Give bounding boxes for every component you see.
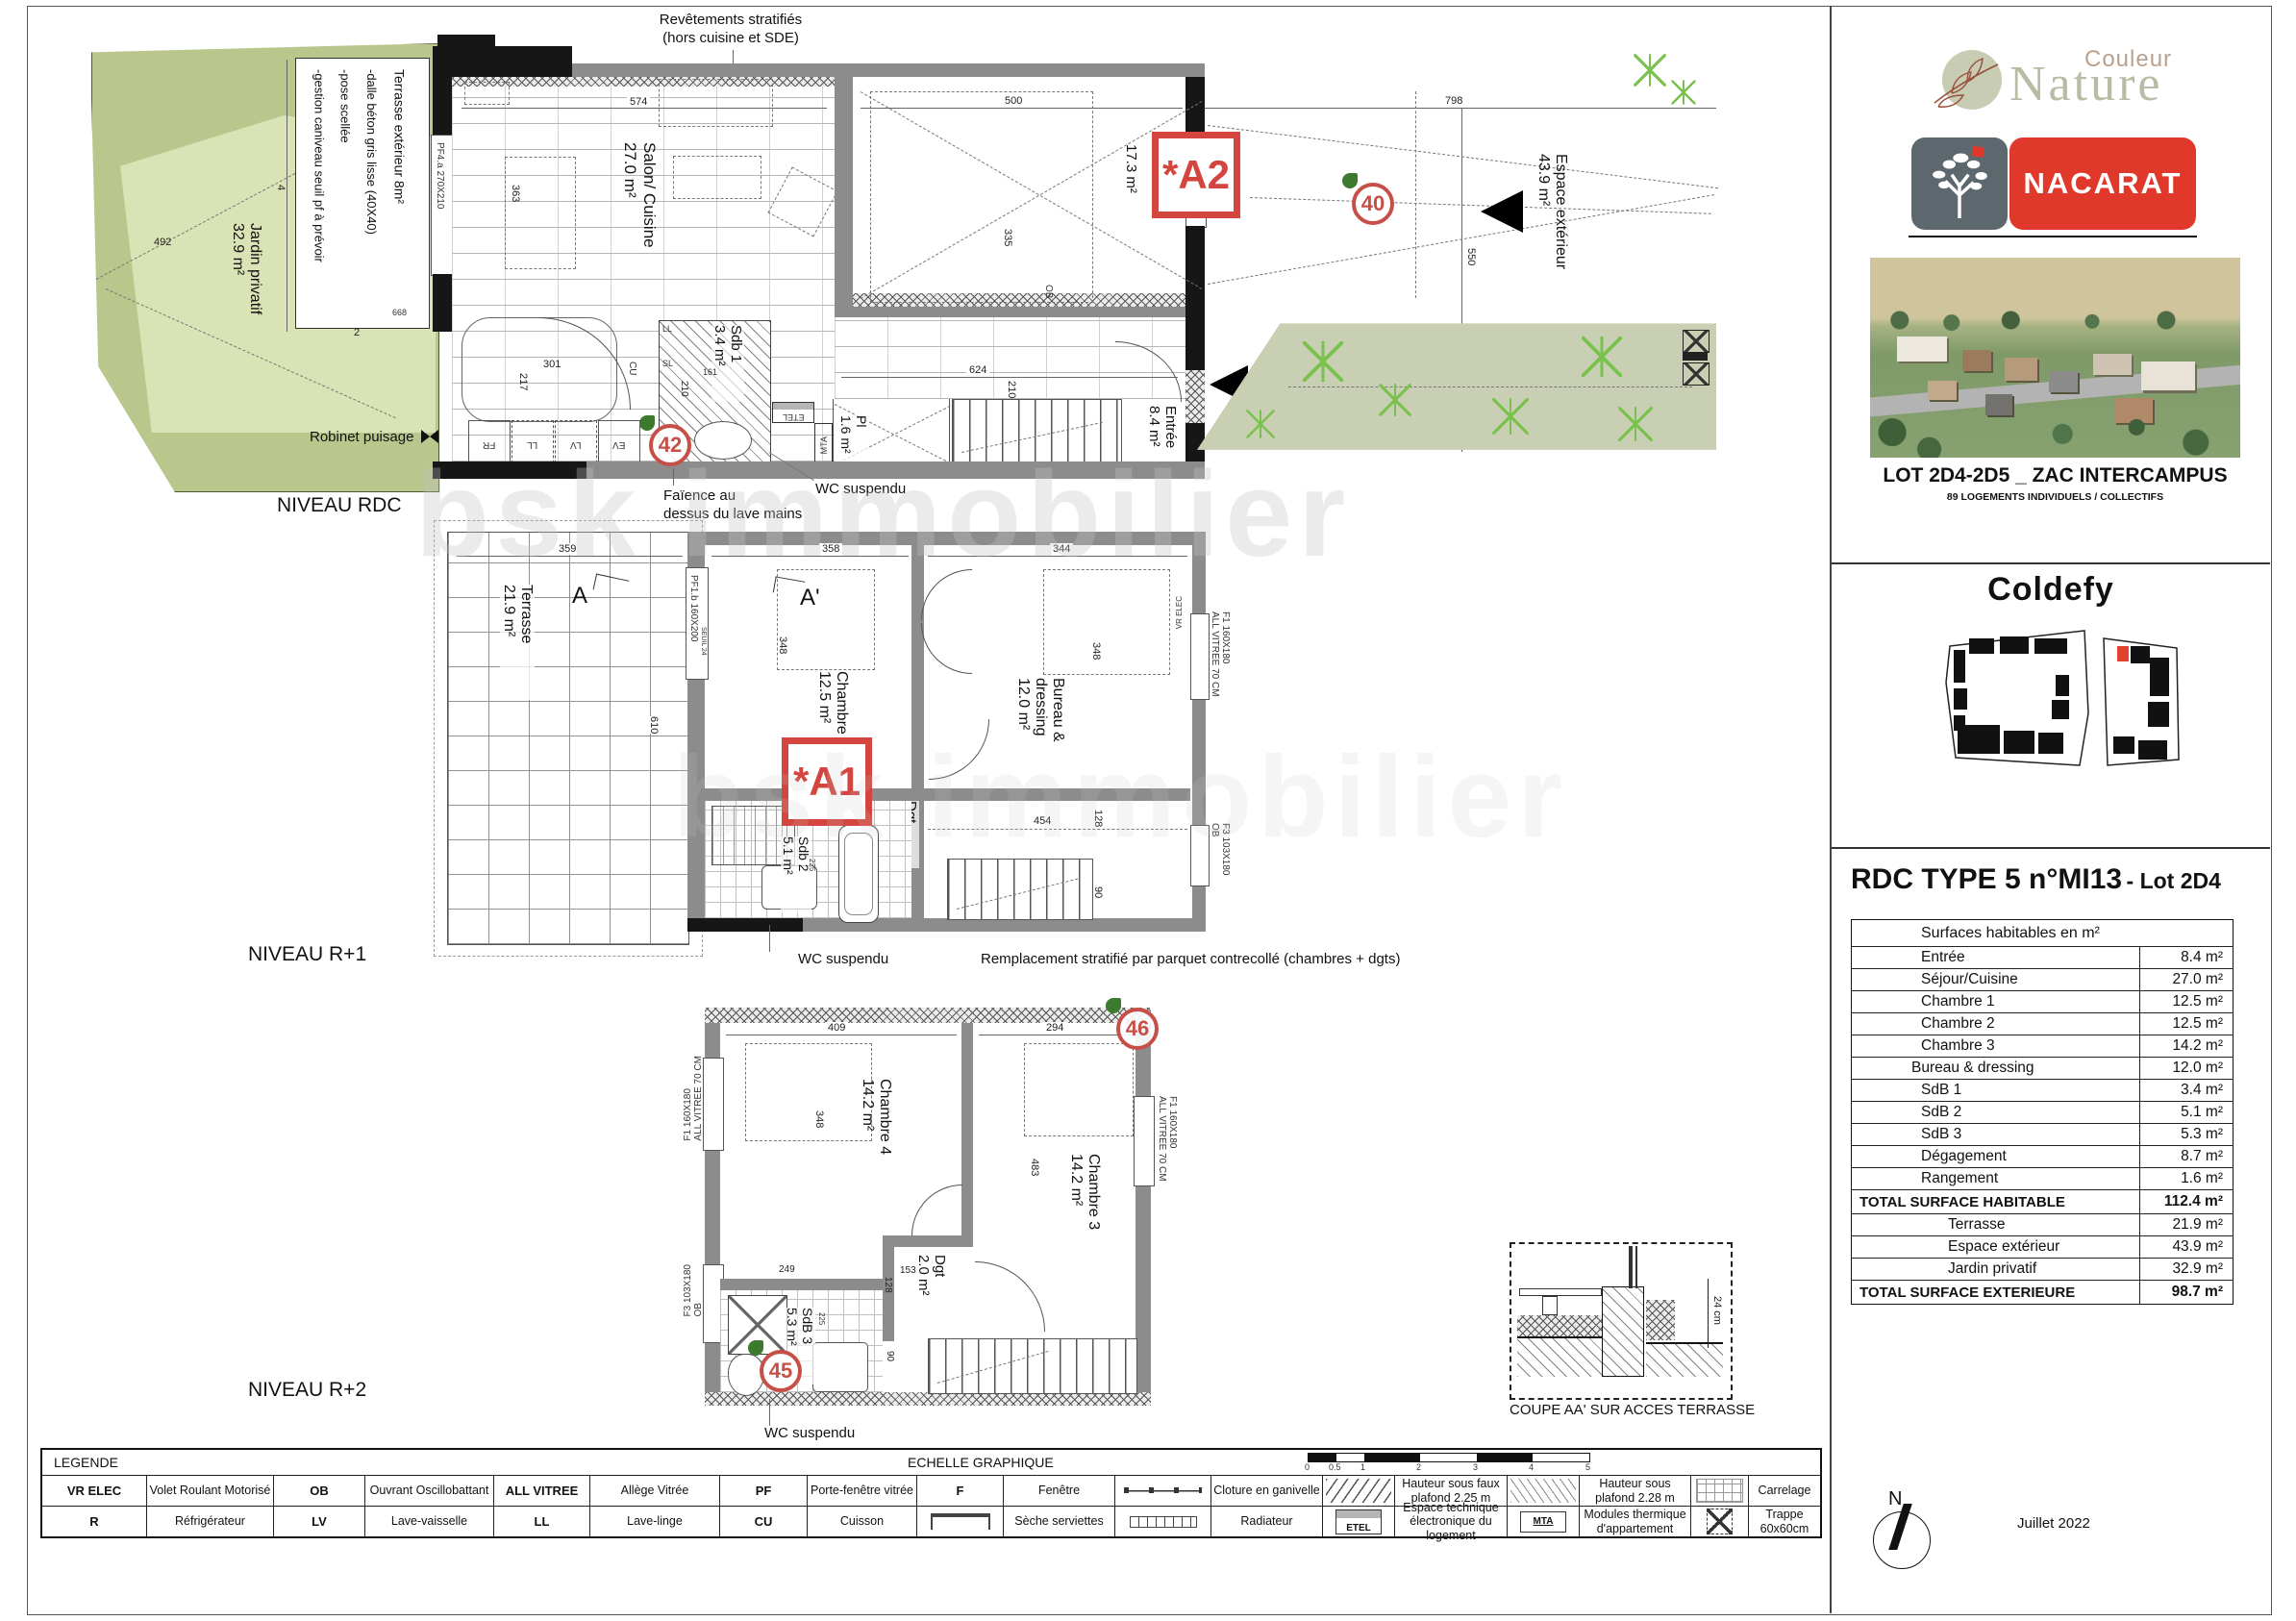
aerial-building-5 [2093, 354, 2132, 375]
legend-hatch1-cell [1322, 1475, 1394, 1506]
r2-ch4-label: Chambre 4 14.2 m² [859, 1079, 893, 1189]
r2-ch3-name: Chambre 3 [1085, 1154, 1102, 1264]
r2-dgt-label: Dgt 2.0 m² [915, 1255, 948, 1327]
salon-name: Salon/ Cuisine [639, 142, 659, 253]
r1-wall-mid-h [705, 788, 1190, 801]
r1-terrasse-name: Terrasse [517, 585, 535, 700]
r1-wall-top [702, 532, 1205, 545]
dim-492: 492 [154, 237, 171, 248]
row-value: 5.1 m² [2139, 1102, 2233, 1123]
dim-249: 249 [779, 1264, 795, 1275]
legend-seche-label: Sèche serviettes [1003, 1506, 1114, 1536]
salon-label: Salon/ Cuisine 27.0 m² [620, 142, 659, 253]
row-value: 43.9 m² [2139, 1236, 2233, 1258]
note-remplacement: Remplacement stratifié par parquet contr… [981, 951, 1400, 969]
garden-note-l1: Terrasse extérieur 8m² [385, 69, 412, 319]
row-label: Séjour/Cuisine [1852, 971, 2139, 988]
r1-bureau-label: Bureau & dressing 12.0 m² [1014, 678, 1066, 803]
row-label: SdB 3 [1852, 1126, 2139, 1143]
appliance-ll-label: LL [527, 439, 537, 450]
r2-ch3-bed [1024, 1043, 1134, 1136]
table-row: Chambre 212.5 m² [1852, 1012, 2233, 1035]
r1-bureau-l3: 12.0 m² [1014, 678, 1032, 803]
dim-210b: 210 [1006, 381, 1017, 398]
badge-a2: *A2 [1152, 132, 1240, 218]
garage-wall-bottom [853, 307, 1185, 317]
hatch1-symbol [1326, 1479, 1390, 1503]
dim-225-r2: 225 [817, 1312, 826, 1325]
salon-furn-1 [464, 82, 510, 105]
dim-610: 610 [648, 716, 660, 734]
row-label: Bureau & dressing [1852, 1060, 2139, 1077]
salon-area: 27.0 m² [620, 142, 639, 253]
dimline-294 [979, 1035, 1133, 1035]
panel-divider-1 [1832, 562, 2270, 564]
table-total-exterieure: TOTAL SURFACE EXTERIEURE98.7 m² [1852, 1280, 2233, 1304]
legend-r-label: Réfrigérateur [146, 1506, 273, 1536]
r1-sdb2-bathtub-inner [844, 833, 873, 915]
dim-210a: 210 [679, 381, 689, 397]
dim-454: 454 [1031, 815, 1054, 827]
coupe-dim-line [1708, 1279, 1709, 1348]
lot-subtitle: 89 LOGEMENTS INDIVIDUELS / COLLECTIFS [1870, 491, 2240, 503]
plant-band-1 [1303, 341, 1343, 382]
hatch2-symbol [1510, 1479, 1575, 1503]
legend-trap-cell [1690, 1506, 1748, 1536]
scale-seg-4 [1420, 1454, 1477, 1461]
r2-ch3-label: Chambre 3 14.2 m² [1067, 1154, 1102, 1264]
dim-153: 153 [900, 1265, 916, 1276]
legend-etel-label: Espace technique électronique du logemen… [1394, 1506, 1507, 1536]
salon-furn-2 [659, 79, 773, 127]
mta-symbol: MTA [1520, 1511, 1566, 1533]
site-key-map [1942, 625, 2183, 769]
row-label: Entrée [1852, 949, 2139, 966]
dimline-409 [726, 1035, 957, 1035]
coupe-deck [1519, 1288, 1602, 1296]
r1-bureau-l1: Bureau & [1049, 678, 1066, 803]
note-wc-r2: WC suspendu [764, 1425, 855, 1443]
dimline-garden-v [287, 60, 287, 332]
coupe-slab-cross [1517, 1315, 1602, 1336]
row-value: 27.0 m² [2139, 969, 2233, 990]
r2-wall-mid-v [961, 1023, 973, 1240]
etel-symbol: ETEL [1335, 1509, 1382, 1534]
legend-vr-elec: VR ELEC [42, 1475, 146, 1506]
scale-tick-1: 1 [1360, 1462, 1365, 1472]
row-label: Espace extérieur [1852, 1238, 2139, 1256]
legend-allvitree-label: Allège Vitrée [589, 1475, 719, 1506]
r2-ch3-area: 14.2 m² [1067, 1154, 1085, 1264]
legend-ll: LL [493, 1506, 589, 1536]
r1-bureau-wardrobe [1043, 569, 1170, 675]
trappe-box-2 [1683, 362, 1710, 386]
lot-title: LOT 2D4-2D5 _ ZAC INTERCAMPUS [1870, 464, 2240, 487]
r1-sdb2-name: Sdb 2 [796, 836, 811, 913]
r2-ch4-area: 14.2 m² [859, 1079, 876, 1189]
rdc-window-pf4-label: PF4.a 270X210 [435, 142, 445, 210]
r1-f1-allvitree: ALL VITREE 70 CM [1210, 611, 1220, 697]
dim-359: 359 [556, 543, 579, 555]
panel-divider [1830, 6, 1832, 1613]
jardin-label: Jardin privatif 32.9 m² [229, 223, 263, 348]
radiator-symbol [1130, 1516, 1197, 1528]
r2-wall-sdb3-h [720, 1279, 886, 1290]
r1-f1-label: F1 160X180 ALL VITREE 70 CM [1210, 611, 1231, 697]
total-ext-value: 98.7 m² [2139, 1281, 2233, 1304]
entree-name: Entrée [1162, 406, 1179, 465]
jardin-name: Jardin privatif [246, 223, 263, 348]
marker-40: 40 [1352, 183, 1394, 225]
r2-wall-top [705, 1008, 1151, 1023]
rdc-wall-top [572, 63, 1205, 77]
legend-allvitree: ALL VITREE [493, 1475, 589, 1506]
appliance-ev-label: EV [612, 439, 625, 450]
r1-wall-mid-v [911, 545, 924, 798]
r1-f1-ref: F1 160X180 [1220, 611, 1231, 697]
table-row: Dégagement8.7 m² [1852, 1145, 2233, 1167]
aerial-building-2 [1962, 350, 1991, 371]
rdc-wall-right-a [1185, 317, 1205, 370]
plan-date: Juillet 2022 [2017, 1515, 2090, 1532]
coupe-right-cross [1646, 1300, 1675, 1340]
r1-f3-ob: OB [1210, 823, 1220, 876]
plant-band-3 [1246, 410, 1274, 437]
plant-topright-1 [1634, 54, 1666, 87]
rdc-wall-right-h [1185, 370, 1205, 423]
echelle-title: ECHELLE GRAPHIQUE [908, 1455, 1054, 1470]
dim-4: 4 [275, 185, 287, 190]
legend-mta-label: Modules thermique d'appartement [1579, 1506, 1690, 1536]
legend-rad-cell [1114, 1506, 1210, 1536]
r1-pf1-label: PF1.b 160X200 [688, 575, 699, 642]
dim-483: 483 [1029, 1159, 1040, 1176]
coupe-window-frame2 [1635, 1246, 1637, 1288]
rdc-wall-bottom-b [433, 461, 586, 479]
legend-f: F [916, 1475, 1003, 1506]
scale-seg-1 [1309, 1454, 1336, 1461]
sdb1-basin [694, 421, 752, 460]
marker-40-leaf [1342, 173, 1358, 188]
r2-wall-right [1136, 1023, 1151, 1392]
r2-sdb3-name: SdB 3 [800, 1308, 815, 1384]
dim-90-r2: 90 [885, 1351, 895, 1361]
row-value: 32.9 m² [2139, 1259, 2233, 1280]
plan-title-suffix: - Lot 2D4 [2127, 868, 2221, 893]
row-value: 8.4 m² [2139, 947, 2233, 968]
r1-terrasse-label: Terrasse 21.9 m² [500, 585, 535, 700]
entree-area: 8.4 m² [1146, 406, 1162, 465]
leader-faience [673, 468, 674, 486]
brand-nature: Nature [2009, 56, 2162, 112]
table-total-habitable: TOTAL SURFACE HABITABLE112.4 m² [1852, 1189, 2233, 1213]
row-label: SdB 2 [1852, 1104, 2139, 1121]
robinet-icon [420, 429, 439, 444]
nacarat-logo-text: NACARAT [2009, 137, 2196, 230]
panel-divider-2 [1832, 847, 2270, 849]
legend-lv: LV [273, 1506, 364, 1536]
r2-sdb3-sink [812, 1342, 868, 1392]
note-revetements: Revêtements stratifiés (hors cuisine et … [615, 12, 846, 48]
r1-vr-elec: VR ELEC [1175, 596, 1184, 629]
row-label: Terrasse [1852, 1216, 2139, 1234]
dim-358: 358 [819, 543, 842, 555]
total-hab-label: TOTAL SURFACE HABITABLE [1852, 1194, 2139, 1210]
garden-note-l2: -dalle béton gris lisse (40X40) [359, 69, 385, 319]
etel-label: ETEL [783, 412, 805, 422]
coupe-step [1602, 1286, 1644, 1377]
dim-500: 500 [1002, 95, 1025, 107]
dim-348b: 348 [1090, 642, 1102, 660]
pl-area: 1.6 m² [838, 415, 854, 468]
legend-hatch2-cell [1507, 1475, 1579, 1506]
scale-seg-2 [1336, 1454, 1364, 1461]
title-niveau-r2: NIVEAU R+2 [248, 1379, 366, 1402]
legend-grid: VR ELEC Volet Roulant Motorisé OB Ouvran… [42, 1475, 1820, 1536]
architect-name: Coldefy [1832, 571, 2270, 609]
r2-dgt-area: 2.0 m² [915, 1255, 932, 1327]
legend-pf-label: Porte-fenêtre vitrée [807, 1475, 916, 1506]
espace-triangle [1481, 190, 1523, 233]
legend-pf: PF [719, 1475, 807, 1506]
r2-wall-bottom [705, 1392, 1151, 1406]
title-niveau-rdc: NIVEAU RDC [277, 494, 402, 517]
leader-wc-r2 [769, 1399, 770, 1426]
table-row: Entrée8.4 m² [1852, 946, 2233, 968]
r2-f3-ref: F3 103X180 [683, 1264, 693, 1317]
sdb1-ll: LL [662, 324, 672, 334]
r1-stairs [947, 859, 1093, 920]
dim-344: 344 [1050, 543, 1073, 555]
table-row: Bureau & dressing12.0 m² [1852, 1057, 2233, 1079]
garage-dashed-rect [870, 91, 1093, 303]
legend-ob: OB [273, 1475, 364, 1506]
total-hab-value: 112.4 m² [2139, 1190, 2233, 1213]
legend-cu-label: Cuisson [807, 1506, 916, 1536]
marker-42-leaf [639, 415, 655, 431]
note-revetements-line1: Revêtements stratifiés [660, 12, 802, 28]
r1-wall-bottom-b [687, 918, 803, 932]
table-row: Rangement1.6 m² [1852, 1167, 2233, 1189]
marker-45: 45 [760, 1350, 802, 1392]
dimline-454 [928, 829, 1187, 830]
legend-f-label: Fenêtre [1003, 1475, 1114, 1506]
scale-seg-6 [1533, 1454, 1589, 1461]
couleur-nature-leaves-icon [1923, 43, 2014, 120]
sdb1-name: Sdb 1 [728, 325, 744, 402]
dim-798: 798 [1442, 95, 1465, 107]
dimline-500 [861, 108, 1183, 109]
surfaces-table: Surfaces habitables en m² Entrée8.4 m² S… [1851, 919, 2234, 1305]
rdc-wall-hatch-top [452, 77, 836, 87]
row-value: 1.6 m² [2139, 1168, 2233, 1189]
key-map-highlight [2117, 646, 2129, 661]
garage-wall-left [835, 77, 853, 317]
legend-fence-label: Cloture en ganivelle [1210, 1475, 1322, 1506]
dim-161: 161 [703, 367, 717, 377]
r1-f3-label: F3 103X180 OB [1210, 823, 1231, 876]
coupe-right-slab [1646, 1342, 1723, 1377]
r2-f1a-allvitree: ALL VITREE 70 CM [693, 1056, 704, 1141]
marker-42: 42 [649, 424, 691, 466]
row-label: Chambre 1 [1852, 993, 2139, 1010]
table-row: Chambre 112.5 m² [1852, 990, 2233, 1012]
r1-f3-ref: F3 103X180 [1220, 823, 1231, 876]
plan-title: RDC TYPE 5 n°MI13 - Lot 2D4 [1851, 863, 2235, 896]
note-wc-rdc: WC suspendu [815, 481, 906, 499]
row-label: Jardin privatif [1852, 1260, 2139, 1278]
plant-band-5 [1582, 337, 1622, 377]
row-value: 12.5 m² [2139, 1013, 2233, 1035]
rdc-stairs [952, 399, 1122, 468]
row-label: Chambre 2 [1852, 1015, 2139, 1033]
r1-terrasse-area: 21.9 m² [500, 585, 517, 700]
garage-ob: OB [1043, 285, 1054, 298]
r1-window-f3 [1190, 825, 1210, 886]
dim-90: 90 [1092, 886, 1104, 898]
rdc-wall-topleft2 [437, 35, 495, 46]
r2-window-f1b [1134, 1096, 1155, 1186]
scale-tick-0: 0 [1305, 1462, 1310, 1472]
scale-bar [1308, 1453, 1590, 1462]
total-ext-label: TOTAL SURFACE EXTERIEURE [1852, 1284, 2139, 1301]
legend-mta-cell: MTA [1507, 1506, 1579, 1536]
trappe-bar [1683, 353, 1708, 361]
row-value: 8.7 m² [2139, 1146, 2233, 1167]
table-row: SdB 13.4 m² [1852, 1079, 2233, 1101]
legend-hatch2-label: Hauteur sous plafond 2.28 m [1579, 1475, 1690, 1506]
dimline-798 [1205, 108, 1716, 109]
r2-wall-dgt-h [883, 1235, 973, 1247]
aerial-treeline [1870, 308, 2240, 333]
dim-128-r2: 128 [883, 1277, 893, 1293]
r1-sdb2-area: 5.1 m² [781, 836, 796, 913]
dim-348a: 348 [777, 636, 788, 654]
trappe-box-1 [1683, 330, 1710, 353]
legend-r: R [42, 1506, 146, 1536]
dim-217: 217 [517, 373, 529, 390]
sdb1-sl: SL [662, 359, 673, 368]
row-label: Rangement [1852, 1170, 2139, 1187]
legend: LEGENDE ECHELLE GRAPHIQUE 0 0.5 1 2 3 4 … [40, 1448, 1822, 1538]
r2-sdb3-wc [728, 1354, 764, 1396]
marker-46-leaf [1106, 998, 1121, 1013]
coupe-plot [1542, 1296, 1558, 1315]
r2-f1b-label: F1 160X180 ALL VITREE 70 CM [1157, 1096, 1178, 1182]
r2-ch4-bed [745, 1043, 872, 1141]
trappe-symbol [1707, 1509, 1733, 1534]
r2-f1b-ref: F1 160X180 [1167, 1096, 1178, 1182]
salon-furn-3 [505, 157, 576, 269]
carrelage-symbol [1696, 1479, 1742, 1503]
scale-seg-3 [1364, 1454, 1420, 1461]
dim-225-r1: 225 [808, 859, 816, 871]
r1-chambre-wardrobe [777, 569, 875, 670]
appliance-lv-label: LV [570, 439, 582, 450]
garden-note-l3: -pose scellée [332, 69, 358, 319]
r1-terrasse [447, 532, 689, 945]
legend-grid-cell [1690, 1475, 1748, 1506]
plant-band-4 [1492, 398, 1529, 435]
mta-label: MTA [819, 436, 829, 454]
coupe-window-frame [1629, 1246, 1633, 1288]
dim-550: 550 [1465, 248, 1477, 265]
badge-a1: *A1 [782, 737, 872, 826]
leader-wc-r1 [769, 925, 770, 952]
scale-tick-5: 5 [1585, 1462, 1590, 1472]
scale-tick-2: 2 [1416, 1462, 1421, 1472]
r2-window-f1a [703, 1058, 724, 1151]
legend-trap-label: Trappe 60x60cm [1748, 1506, 1820, 1536]
dimline-358 [711, 556, 909, 557]
row-value: 12.0 m² [2139, 1058, 2233, 1079]
marker-45-leaf [748, 1340, 763, 1356]
dim-294: 294 [1043, 1022, 1066, 1034]
row-value: 21.9 m² [2139, 1214, 2233, 1235]
legend-ob-label: Ouvrant Oscillobattant [364, 1475, 493, 1506]
plant-band-2 [1379, 384, 1411, 416]
r2-dgt-name: Dgt [932, 1255, 948, 1327]
plan-title-main: RDC TYPE 5 n°MI13 [1851, 863, 2122, 895]
jardin-area: 32.9 m² [229, 223, 246, 348]
table-row-ext: Jardin privatif32.9 m² [1852, 1258, 2233, 1280]
espace-dash-v [1415, 91, 1416, 298]
r2-f1b-allvitree: ALL VITREE 70 CM [1157, 1096, 1167, 1182]
scale-tick-3: 3 [1473, 1462, 1478, 1472]
espace-area: 43.9 m² [1535, 154, 1552, 279]
nacarat-underline [1909, 236, 2197, 237]
robinet-label: Robinet puisage [310, 429, 413, 447]
scale-tick-05: 0.5 [1329, 1462, 1341, 1472]
dim-335: 335 [1002, 229, 1013, 246]
plan-sheet: bsk immobilier bsk immobilier Revêtement… [0, 0, 2296, 1621]
dim-574: 574 [627, 96, 650, 108]
legend-lv-label: Lave-vaisselle [364, 1506, 493, 1536]
r2-ch4-name: Chambre 4 [876, 1079, 893, 1189]
row-value: 5.3 m² [2139, 1124, 2233, 1145]
r1-window-f1 [1190, 613, 1210, 700]
sdb1-area: 3.4 m² [711, 325, 728, 402]
etel-box: ETEL [772, 402, 814, 423]
legend-cu: CU [719, 1506, 807, 1536]
legend-grid-label: Carrelage [1748, 1475, 1820, 1506]
pl-name: Pl [854, 415, 869, 468]
nacarat-tree-icon [1921, 143, 1998, 224]
r1-sdb2-label: Sdb 2 5.1 m² [781, 836, 811, 913]
row-value: 14.2 m² [2139, 1035, 2233, 1057]
row-label: Dégagement [1852, 1148, 2139, 1165]
row-value: 3.4 m² [2139, 1080, 2233, 1101]
entree-label: Entrée 8.4 m² [1146, 406, 1179, 465]
row-label: SdB 1 [1852, 1082, 2139, 1099]
r1-bureau-l2: dressing [1032, 678, 1049, 803]
table-row: SdB 25.1 m² [1852, 1101, 2233, 1123]
dim-624: 624 [966, 364, 989, 376]
row-label: Chambre 3 [1852, 1037, 2139, 1055]
plant-band-6 [1618, 407, 1653, 441]
coupe-slab-diag [1517, 1336, 1602, 1377]
table-header-row: Surfaces habitables en m² [1852, 920, 2233, 946]
r2-f1a-label: F1 160X180 ALL VITREE 70 CM [683, 1056, 704, 1141]
espace-label: Espace extérieur 43.9 m² [1535, 154, 1569, 279]
legend-seche-cell [916, 1506, 1003, 1536]
scale-tick-4: 4 [1529, 1462, 1534, 1472]
garage-area-value: 17.3 m² [1123, 144, 1139, 202]
section-a: A [572, 583, 587, 610]
planted-dash [1288, 387, 1692, 387]
legend-title: LEGENDE [54, 1455, 118, 1470]
sdb1-label: Sdb 1 3.4 m² [711, 325, 744, 402]
